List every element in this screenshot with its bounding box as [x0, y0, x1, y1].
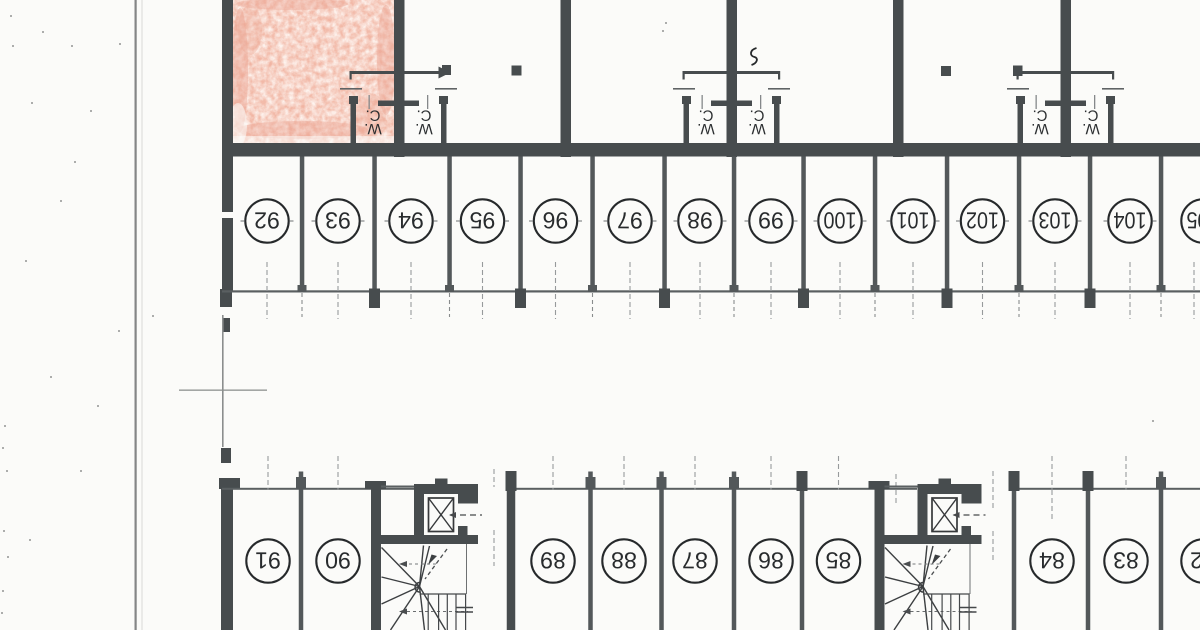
svg-text:87: 87	[682, 547, 708, 573]
svg-text:93: 93	[325, 207, 351, 233]
svg-text:102: 102	[966, 207, 999, 233]
svg-text:86: 86	[758, 547, 784, 573]
svg-text:C.: C.	[365, 106, 380, 123]
svg-text:88: 88	[611, 547, 637, 573]
svg-text:94: 94	[398, 207, 424, 233]
svg-text:95: 95	[470, 207, 496, 233]
svg-text:85: 85	[826, 547, 852, 573]
svg-text:C.: C.	[1083, 106, 1098, 123]
svg-text:83: 83	[1113, 547, 1139, 573]
svg-text:101: 101	[896, 207, 929, 233]
svg-text:90: 90	[325, 547, 351, 573]
svg-text:99: 99	[758, 207, 784, 233]
svg-text:89: 89	[540, 547, 566, 573]
svg-text:82: 82	[1190, 547, 1200, 573]
svg-text:96: 96	[543, 207, 569, 233]
svg-text:C.: C.	[698, 106, 713, 123]
svg-text:104: 104	[1113, 207, 1146, 233]
svg-text:103: 103	[1038, 207, 1071, 233]
svg-text:105: 105	[1186, 207, 1200, 233]
svg-text:100: 100	[823, 207, 856, 233]
svg-text:C.: C.	[749, 106, 764, 123]
svg-text:91: 91	[255, 547, 281, 573]
svg-text:92: 92	[254, 207, 280, 233]
svg-text:97: 97	[617, 207, 643, 233]
svg-text:84: 84	[1039, 547, 1065, 573]
svg-text:C.: C.	[416, 106, 431, 123]
svg-text:98: 98	[687, 207, 713, 233]
svg-text:C.: C.	[1032, 106, 1047, 123]
